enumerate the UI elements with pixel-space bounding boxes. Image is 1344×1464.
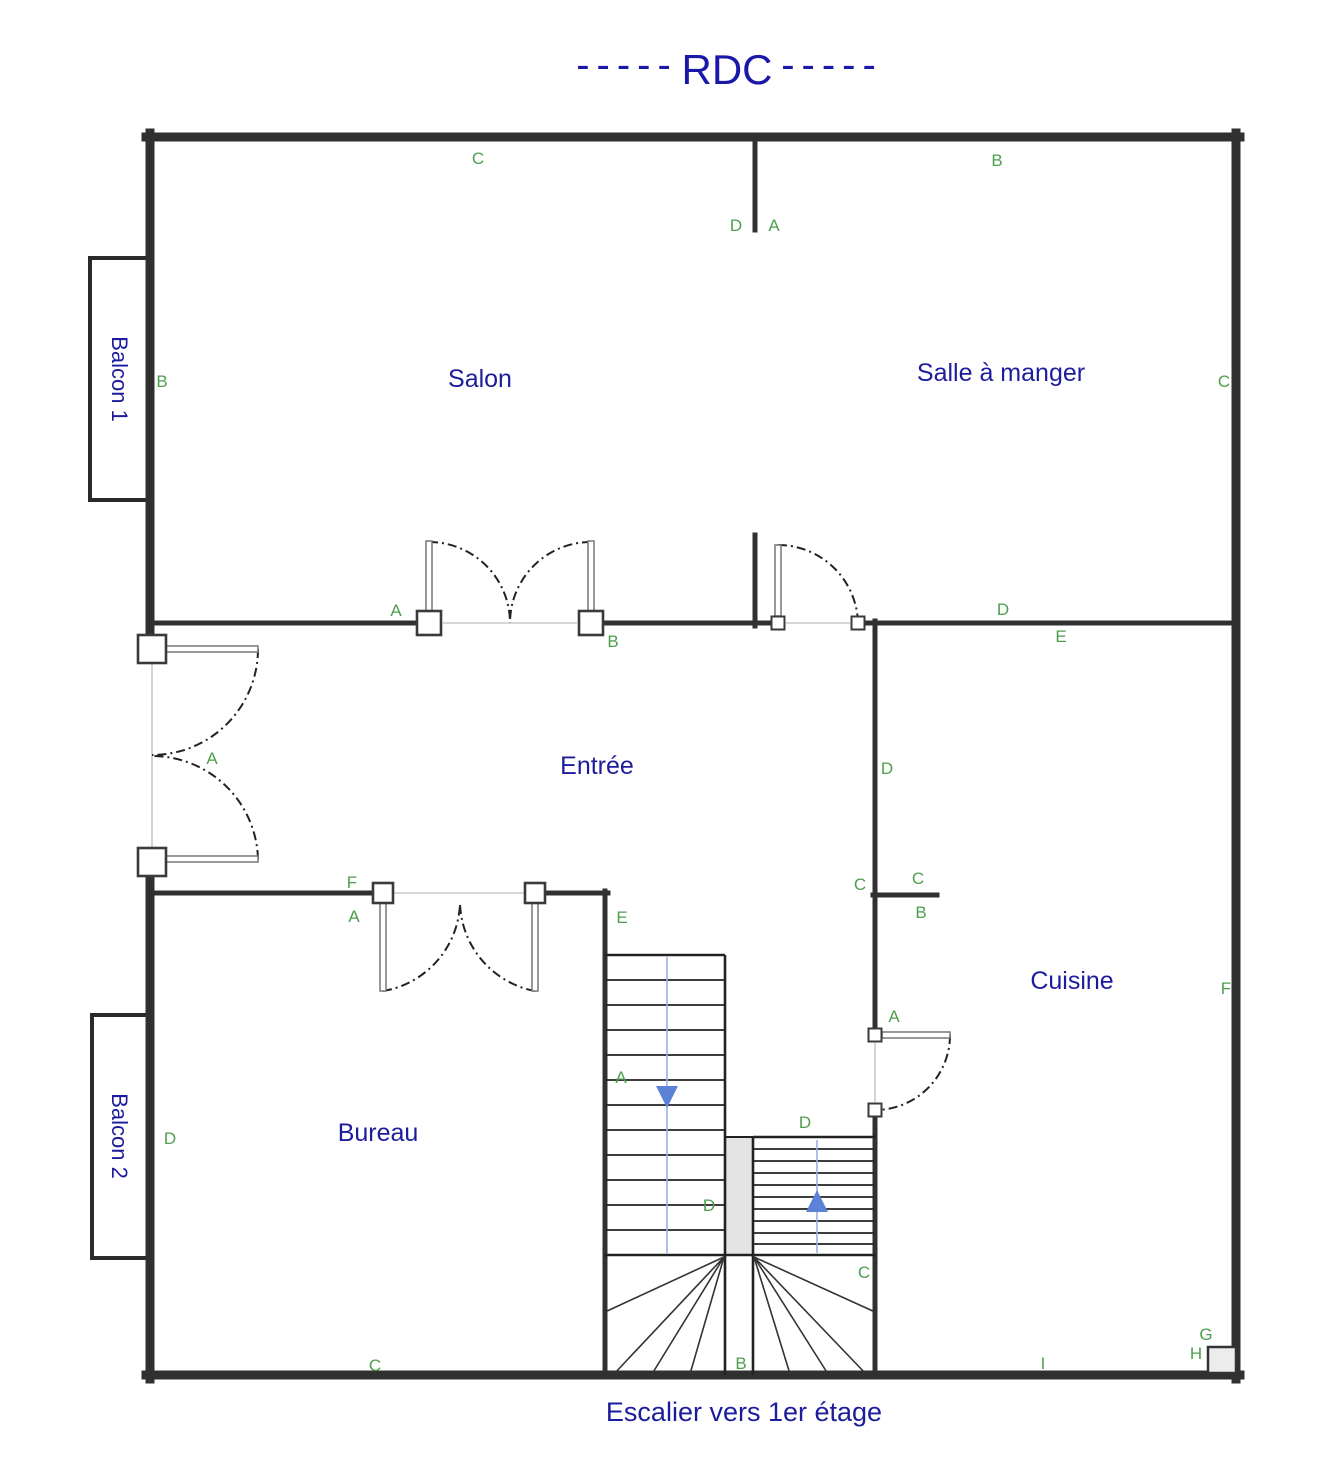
title-dashes-left: ----- xyxy=(576,43,678,87)
marker-bureau-west-d: D xyxy=(164,1129,176,1148)
marker-stair-fan-c: C xyxy=(858,1263,870,1282)
marker-kitchen-wall-upper: D xyxy=(881,759,893,778)
door-thresholds xyxy=(152,623,875,1102)
marker-dining-wall-left: D xyxy=(997,600,1009,619)
marker-bureau-wall-e: E xyxy=(616,908,627,927)
door-post xyxy=(417,611,441,635)
marker-kitchen-stub-west: C xyxy=(854,875,866,894)
room-label-salon: Salon xyxy=(448,365,512,393)
room-label-balcon-1: Balcon 1 xyxy=(107,336,132,422)
marker-chimney-g: G xyxy=(1199,1325,1212,1344)
door-post xyxy=(525,883,545,903)
staircase xyxy=(605,955,875,1375)
page-title: RDC xyxy=(682,46,773,93)
marker-dining-top: B xyxy=(991,151,1002,170)
door-cuisine-single xyxy=(869,1029,951,1117)
title-dashes-right: ----- xyxy=(781,43,883,87)
marker-kitchen-bottom-i: I xyxy=(1041,1354,1046,1373)
door-post xyxy=(138,635,166,663)
door-post xyxy=(869,1029,882,1042)
interior-walls xyxy=(150,137,1236,1375)
door-post xyxy=(579,611,603,635)
room-label-bureau: Bureau xyxy=(338,1119,419,1147)
door-entree-west-french xyxy=(138,635,258,876)
marker-stair-left-a: A xyxy=(615,1068,627,1087)
stair-divider xyxy=(725,1137,753,1255)
door-bureau-double xyxy=(373,883,545,991)
door-post xyxy=(852,617,865,630)
stairs-caption: Escalier vers 1er étage xyxy=(606,1397,882,1427)
marker-stair-divider-d: D xyxy=(703,1196,715,1215)
marker-stair-fan-b: B xyxy=(735,1354,746,1373)
marker-entrance-french-door: A xyxy=(206,749,218,768)
plan-title: ----- RDC ----- xyxy=(576,43,883,93)
room-label-salle-a-manger: Salle à manger xyxy=(917,359,1085,387)
marker-stair-right-top-d: D xyxy=(799,1113,811,1132)
room-labels: Salon Salle à manger Entrée Cuisine Bure… xyxy=(107,336,1114,1427)
marker-kitchen-stub-bottom: B xyxy=(915,903,926,922)
door-salon-double xyxy=(417,541,603,635)
door-post xyxy=(138,848,166,876)
marker-bureau-bottom-c: C xyxy=(369,1356,381,1375)
marker-kitchen-stub-top: C xyxy=(912,869,924,888)
room-label-entree: Entrée xyxy=(560,752,634,780)
floor-plan-page: ----- RDC ----- xyxy=(0,0,1344,1464)
marker-dining-east: C xyxy=(1218,372,1230,391)
marker-chimney-h: H xyxy=(1190,1344,1202,1363)
door-post xyxy=(869,1104,882,1117)
stair-treads-left xyxy=(606,980,724,1230)
marker-opening-top-right: A xyxy=(768,216,780,235)
marker-salon-top: C xyxy=(472,149,484,168)
marker-salon-door-left: A xyxy=(390,601,402,620)
marker-dining-wall-right: E xyxy=(1055,627,1066,646)
chimney-duct xyxy=(1208,1347,1236,1373)
marker-bureau-door-a: A xyxy=(348,907,360,926)
marker-salon-west: B xyxy=(156,372,167,391)
wall-markers: C B D A B C A B D E A D C C B F A E A A … xyxy=(156,149,1231,1375)
door-post xyxy=(373,883,393,903)
room-label-balcon-2: Balcon 2 xyxy=(107,1093,132,1179)
marker-bureau-door-f: F xyxy=(347,873,357,892)
exterior-walls xyxy=(146,133,1240,1379)
marker-kitchen-east-f: F xyxy=(1221,979,1231,998)
room-label-cuisine: Cuisine xyxy=(1030,967,1113,995)
marker-kitchen-door: A xyxy=(888,1007,900,1026)
door-dining-single xyxy=(772,545,865,630)
marker-salon-door-right: B xyxy=(607,632,618,651)
marker-opening-top-left: D xyxy=(730,216,742,235)
stair-arrow-up-icon xyxy=(806,1190,828,1212)
floor-plan-svg: ----- RDC ----- xyxy=(0,0,1344,1464)
door-post xyxy=(772,617,785,630)
